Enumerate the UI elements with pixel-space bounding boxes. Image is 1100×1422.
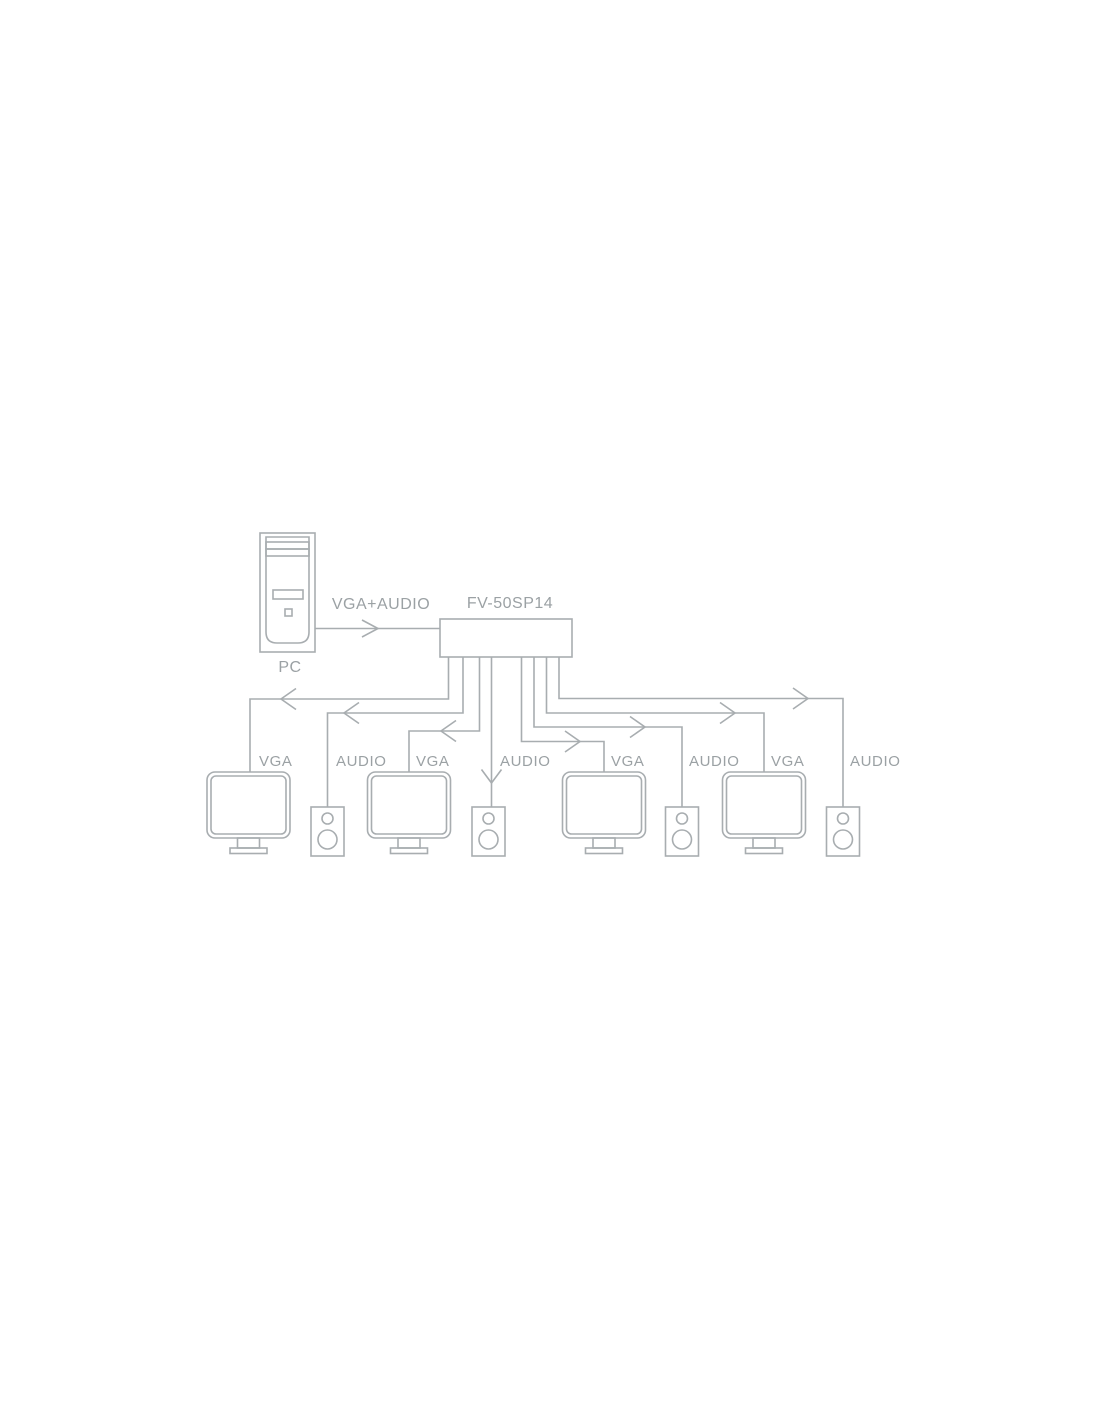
- pc-tower-icon: [260, 533, 315, 652]
- speaker-woofer: [834, 830, 853, 849]
- monitor-screen-inner: [211, 776, 286, 834]
- monitor-icon-4: [723, 772, 806, 854]
- input-link-label: VGA+AUDIO: [332, 596, 430, 613]
- speaker-icon-2: [472, 807, 505, 856]
- monitor-stand-base: [391, 848, 428, 854]
- monitor-screen-inner: [567, 776, 642, 834]
- output-line: [559, 657, 843, 807]
- monitor-icon-3: [563, 772, 646, 854]
- output-label-audio-2: AUDIO: [500, 753, 551, 770]
- monitor-stand-neck: [238, 838, 260, 848]
- output-label-vga-1: VGA: [259, 753, 292, 770]
- output-label-audio-4: AUDIO: [850, 753, 901, 770]
- speaker-tweeter: [483, 813, 494, 824]
- speaker-icon-3: [666, 807, 699, 856]
- monitor-stand-base: [230, 848, 267, 854]
- monitor-screen-outer: [207, 772, 290, 838]
- speaker-woofer: [673, 830, 692, 849]
- speaker-woofer: [479, 830, 498, 849]
- diagram-canvas: PC VGA+AUDIO FV-50SP14: [0, 0, 1100, 1422]
- monitor-screen-outer: [723, 772, 806, 838]
- pc-label: PC: [278, 659, 301, 676]
- monitor-stand-neck: [753, 838, 775, 848]
- pc-tower-slot-top: [266, 542, 309, 549]
- speaker-woofer: [318, 830, 337, 849]
- monitor-stand-base: [586, 848, 623, 854]
- output-label-audio-3: AUDIO: [689, 753, 740, 770]
- output-line: [534, 657, 682, 807]
- speaker-tweeter: [677, 813, 688, 824]
- speaker-icon-4: [827, 807, 860, 856]
- output-link-6-audio: [534, 657, 682, 807]
- splitter-model-label: FV-50SP14: [467, 595, 553, 612]
- output-label-audio-1: AUDIO: [336, 753, 387, 770]
- pc-to-splitter-link: [315, 620, 440, 637]
- pc-tower-case: [260, 533, 315, 652]
- output-link-8-audio: [559, 657, 843, 807]
- monitor-screen-inner: [727, 776, 802, 834]
- output-label-vga-2: VGA: [416, 753, 449, 770]
- output-label-vga-3: VGA: [611, 753, 644, 770]
- monitor-stand-base: [746, 848, 783, 854]
- splitter-connection-diagram: PC VGA+AUDIO FV-50SP14: [0, 0, 1100, 1422]
- speaker-tweeter: [322, 813, 333, 824]
- speaker-icon-1: [311, 807, 344, 856]
- speaker-tweeter: [838, 813, 849, 824]
- monitor-icon-1: [207, 772, 290, 854]
- pc-tower-power-button: [285, 609, 292, 616]
- monitor-screen-inner: [372, 776, 447, 834]
- monitor-icon-2: [368, 772, 451, 854]
- splitter-box: [440, 619, 572, 657]
- monitor-screen-outer: [368, 772, 451, 838]
- pc-tower-drive-bay: [273, 590, 303, 599]
- monitor-stand-neck: [398, 838, 420, 848]
- monitor-stand-neck: [593, 838, 615, 848]
- pc-tower-slot-bottom: [266, 549, 309, 556]
- output-label-vga-4: VGA: [771, 753, 804, 770]
- output-link-4-audio: [482, 657, 502, 807]
- monitor-screen-outer: [563, 772, 646, 838]
